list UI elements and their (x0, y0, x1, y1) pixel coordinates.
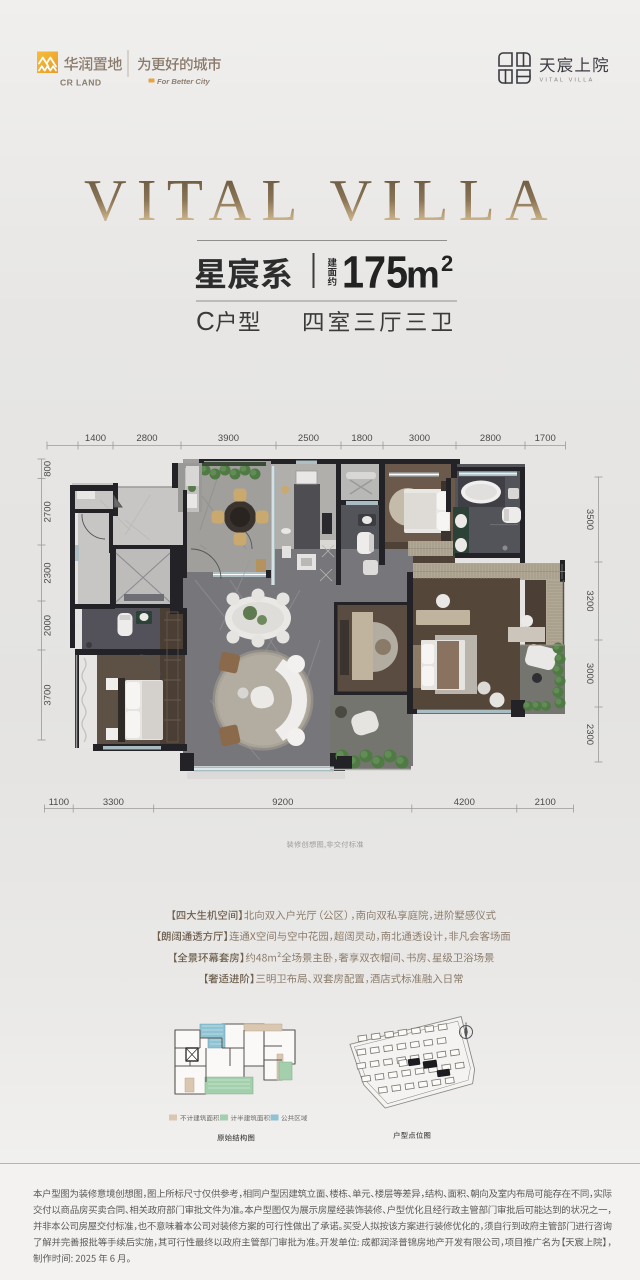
svg-text:3500: 3500 (584, 509, 595, 530)
svg-text:2800: 2800 (136, 433, 157, 444)
svg-text:m: m (406, 255, 440, 297)
svg-text:3000: 3000 (409, 433, 430, 444)
svg-text:VITAL VILLA: VITAL VILLA (540, 78, 595, 84)
svg-text:3000: 3000 (584, 663, 595, 684)
svg-text:VITAL VILLA: VITAL VILLA (84, 167, 558, 233)
svg-text:3900: 3900 (218, 433, 239, 444)
svg-text:1400: 1400 (85, 433, 106, 444)
svg-text:2000: 2000 (43, 615, 54, 636)
svg-text:1100: 1100 (49, 797, 69, 808)
svg-text:2300: 2300 (43, 562, 54, 583)
svg-text:9200: 9200 (272, 797, 293, 808)
svg-text:2700: 2700 (43, 501, 54, 522)
svg-text:CR LAND: CR LAND (60, 78, 101, 88)
svg-text:3700: 3700 (43, 684, 54, 705)
svg-text:2100: 2100 (535, 797, 556, 808)
svg-text:2800: 2800 (480, 433, 501, 444)
svg-text:175: 175 (342, 247, 408, 298)
svg-text:For Better City: For Better City (157, 77, 211, 86)
svg-text:C: C (196, 306, 215, 336)
svg-text:800: 800 (43, 461, 54, 477)
svg-text:2500: 2500 (298, 433, 319, 444)
svg-text:2300: 2300 (584, 724, 595, 745)
svg-text:3300: 3300 (103, 797, 124, 808)
svg-text:1700: 1700 (535, 433, 556, 444)
svg-text:3200: 3200 (584, 590, 595, 611)
svg-text:4200: 4200 (454, 797, 475, 808)
svg-text:1800: 1800 (351, 433, 372, 444)
svg-text:2: 2 (441, 251, 453, 276)
